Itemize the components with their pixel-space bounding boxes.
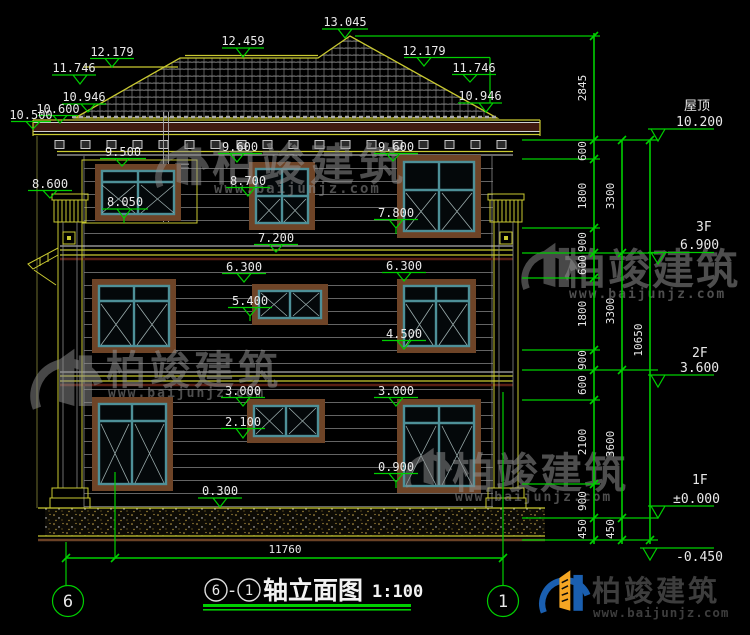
- level-name: 1F: [692, 473, 708, 488]
- right-level-labels: 屋顶 10.200 3F 6.900 2F 3.600 1F ±0.000 -0…: [640, 99, 723, 565]
- elevation-label: 8.600: [32, 177, 68, 191]
- title-underline-2: [203, 609, 411, 611]
- grid-number: 6: [63, 592, 73, 612]
- watermark-url: www.baijunjz.com: [569, 287, 726, 302]
- elevation-label: 10.500: [9, 108, 52, 122]
- elevation-label: 8.700: [230, 174, 266, 188]
- elevation-label: 9.600: [222, 140, 258, 154]
- level-name: 屋顶: [684, 99, 710, 114]
- elevation-label: 13.045: [323, 15, 366, 29]
- elevation-label: 2.100: [225, 415, 261, 429]
- dim-value: 900: [576, 232, 589, 252]
- window-1f-left: [95, 400, 170, 488]
- dim-value: 2100: [576, 429, 589, 456]
- footer-logo: 柏竣建筑 www.baijunjz.com: [542, 570, 729, 620]
- watermark-center: 柏竣建筑 www.baijunjz.com: [35, 348, 282, 408]
- elevation-label: 3.000: [225, 384, 261, 398]
- window-3f-right: [400, 158, 478, 235]
- title-scale: 1:100: [372, 582, 423, 602]
- elevation-label: 11.746: [52, 61, 95, 75]
- dim-value: 11760: [268, 543, 301, 556]
- elevation-label: 12.179: [402, 44, 445, 58]
- level-value: 3.600: [680, 361, 719, 376]
- title-text: 轴立面图: [263, 576, 363, 605]
- drawing-title: 6 - 1 轴立面图 1:100: [203, 576, 423, 611]
- fascia-band: [33, 123, 540, 132]
- level-value: ±0.000: [673, 492, 720, 507]
- elevation-label: 6.300: [226, 260, 262, 274]
- dim-value: 1800: [576, 301, 589, 328]
- elevation-label: 7.800: [378, 206, 414, 220]
- cad-elevation-screenshot: 柏竣建筑 www.baijunjz.com 柏竣建筑 www.baijunjz.…: [0, 0, 750, 635]
- floor-band-3f: [60, 246, 513, 259]
- dim-value: 3300: [604, 298, 617, 325]
- dim-value: 900: [576, 491, 589, 511]
- dim-value: 600: [576, 255, 589, 275]
- elevation-label: 6.300: [386, 259, 422, 273]
- level-value: 10.200: [676, 115, 723, 130]
- level-name: 3F: [696, 220, 712, 235]
- dim-value: 2845: [576, 75, 589, 102]
- elevation-label: 0.900: [378, 460, 414, 474]
- dim-value: 600: [576, 141, 589, 161]
- dim-value: 10650: [632, 323, 645, 356]
- elevation-label: 0.300: [202, 484, 238, 498]
- elevation-label: 7.200: [258, 231, 294, 245]
- elevation-label: 9.500: [105, 145, 141, 159]
- left-canopy: [28, 248, 58, 285]
- level-value: -0.450: [676, 550, 723, 565]
- level-value: 6.900: [680, 238, 719, 253]
- title-separator: -: [227, 580, 238, 601]
- footer-brand: 柏竣建筑: [592, 574, 720, 608]
- elevation-label: 5.400: [232, 294, 268, 308]
- elevation-label: 4.500: [386, 327, 422, 341]
- dim-value: 600: [576, 375, 589, 395]
- brand-logo-icon: [542, 570, 587, 612]
- title-underline: [203, 604, 411, 607]
- dim-value: 900: [576, 350, 589, 370]
- footer-url: www.baijunjz.com: [593, 605, 729, 620]
- window-2f-left: [95, 282, 173, 350]
- grid-number: 1: [498, 592, 508, 612]
- ground: [38, 508, 545, 540]
- elevation-label: 8.050: [107, 195, 143, 209]
- elevation-label: 10.946: [458, 89, 501, 103]
- elevation-label: 11.746: [452, 61, 495, 75]
- elevation-label: 12.459: [221, 34, 264, 48]
- dim-value: 1800: [576, 183, 589, 210]
- title-axis-right: 1: [245, 583, 253, 599]
- dim-value: 3300: [604, 183, 617, 210]
- dim-value: 3600: [604, 431, 617, 458]
- level-name: 2F: [692, 346, 708, 361]
- dim-value: 450: [576, 519, 589, 539]
- elevation-label: 3.000: [378, 384, 414, 398]
- elevation-label: 12.179: [90, 45, 133, 59]
- dim-value: 450: [604, 519, 617, 539]
- title-axis-left: 6: [212, 583, 220, 599]
- elevation-drawing: 柏竣建筑 www.baijunjz.com 柏竣建筑 www.baijunjz.…: [0, 0, 750, 635]
- elevation-label: 9.600: [378, 140, 414, 154]
